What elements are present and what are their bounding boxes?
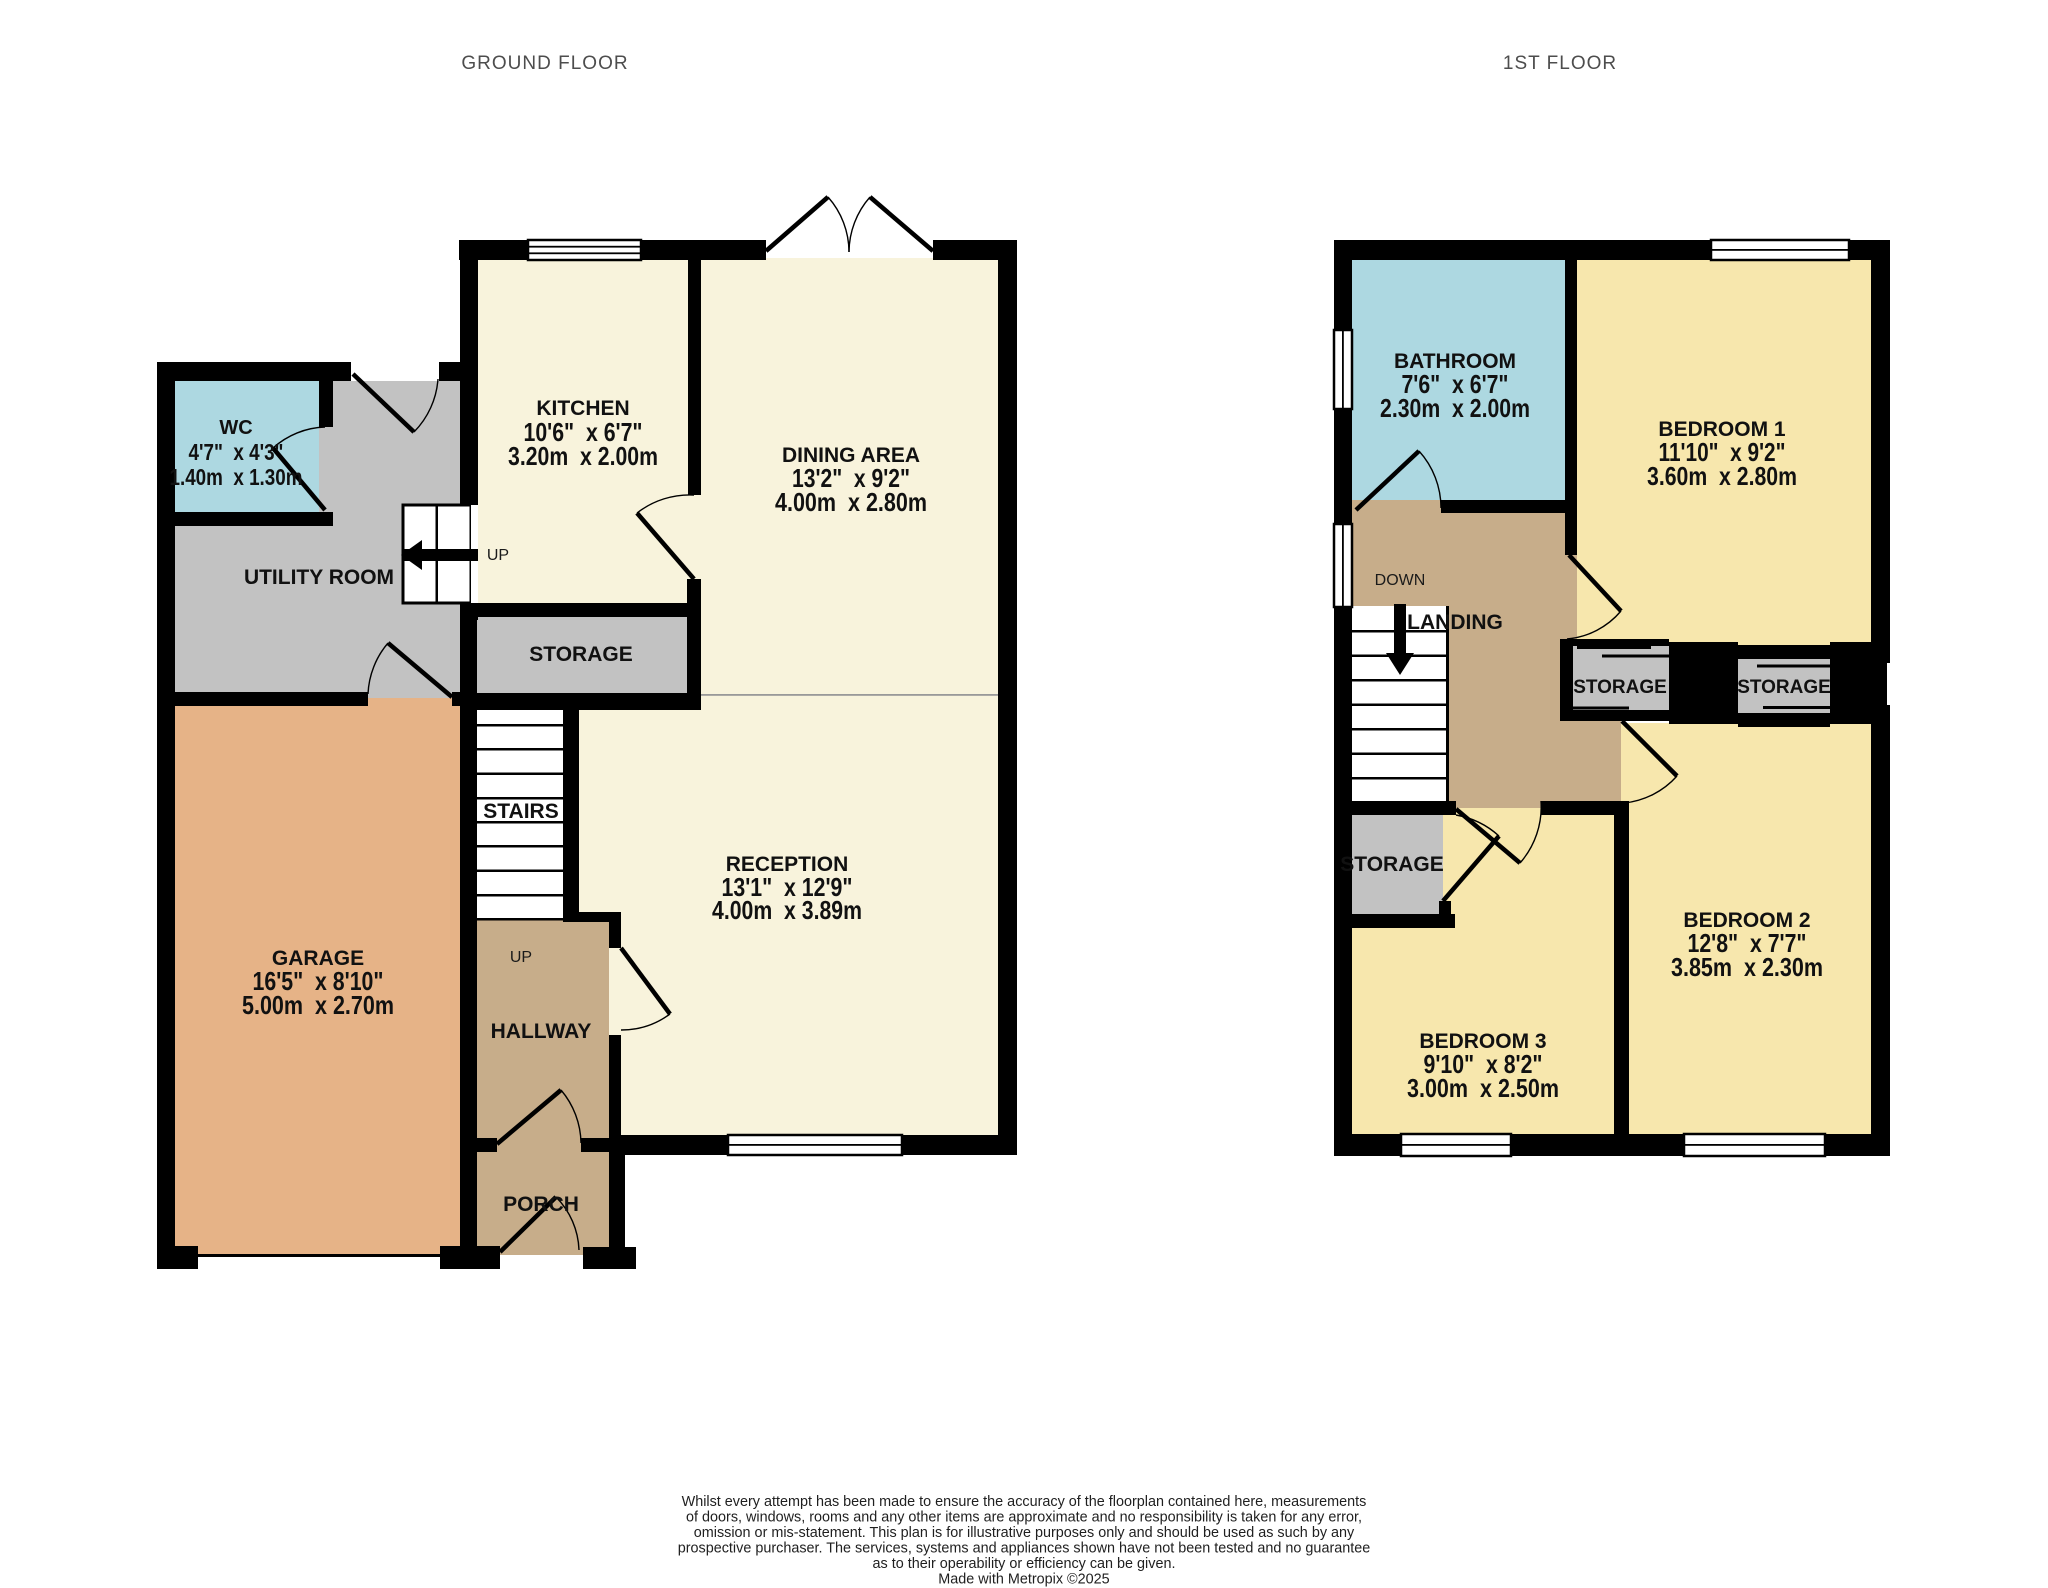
svg-text:LANDING: LANDING bbox=[1407, 611, 1503, 634]
svg-text:STORAGE: STORAGE bbox=[1340, 853, 1443, 876]
svg-text:3.60m x 2.80m: 3.60m x 2.80m bbox=[1647, 461, 1797, 491]
svg-text:PORCH: PORCH bbox=[503, 1193, 579, 1216]
svg-text:1.40m x 1.30m: 1.40m x 1.30m bbox=[170, 464, 303, 490]
svg-text:4.00m x 2.80m: 4.00m x 2.80m bbox=[775, 487, 927, 517]
svg-text:HALLWAY: HALLWAY bbox=[491, 1020, 592, 1043]
svg-text:omission or mis-statement. Thi: omission or mis-statement. This plan is … bbox=[694, 1525, 1355, 1541]
svg-text:Made with Metropix ©2025: Made with Metropix ©2025 bbox=[938, 1572, 1109, 1588]
svg-text:WC: WC bbox=[219, 417, 252, 439]
svg-text:5.00m x 2.70m: 5.00m x 2.70m bbox=[242, 990, 394, 1020]
svg-text:4'7" x 4'3": 4'7" x 4'3" bbox=[189, 439, 284, 465]
svg-text:STORAGE: STORAGE bbox=[1573, 677, 1667, 698]
svg-text:prospective purchaser. The ser: prospective purchaser. The services, sys… bbox=[678, 1541, 1371, 1557]
svg-text:3.20m x 2.00m: 3.20m x 2.00m bbox=[508, 441, 658, 471]
svg-text:as to their operability or eff: as to their operability or efficiency ca… bbox=[873, 1556, 1176, 1572]
svg-text:3.85m x 2.30m: 3.85m x 2.30m bbox=[1671, 952, 1823, 982]
svg-text:STORAGE: STORAGE bbox=[1737, 677, 1831, 698]
svg-text:2.30m x 2.00m: 2.30m x 2.00m bbox=[1380, 393, 1530, 423]
svg-text:STAIRS: STAIRS bbox=[483, 800, 558, 823]
svg-text:UTILITY ROOM: UTILITY ROOM bbox=[244, 566, 394, 589]
svg-text:STORAGE: STORAGE bbox=[529, 643, 632, 666]
svg-text:GROUND FLOOR: GROUND FLOOR bbox=[461, 53, 628, 74]
svg-text:3.00m x 2.50m: 3.00m x 2.50m bbox=[1407, 1073, 1559, 1103]
svg-text:of doors, windows, rooms and a: of doors, windows, rooms and any other i… bbox=[686, 1510, 1362, 1526]
svg-text:Whilst every attempt has been: Whilst every attempt has been made to en… bbox=[682, 1494, 1367, 1510]
svg-text:UP: UP bbox=[487, 547, 509, 564]
svg-text:DOWN: DOWN bbox=[1375, 572, 1426, 589]
svg-text:UP: UP bbox=[510, 949, 532, 966]
svg-text:1ST FLOOR: 1ST FLOOR bbox=[1503, 53, 1617, 74]
svg-text:4.00m x 3.89m: 4.00m x 3.89m bbox=[712, 895, 862, 925]
